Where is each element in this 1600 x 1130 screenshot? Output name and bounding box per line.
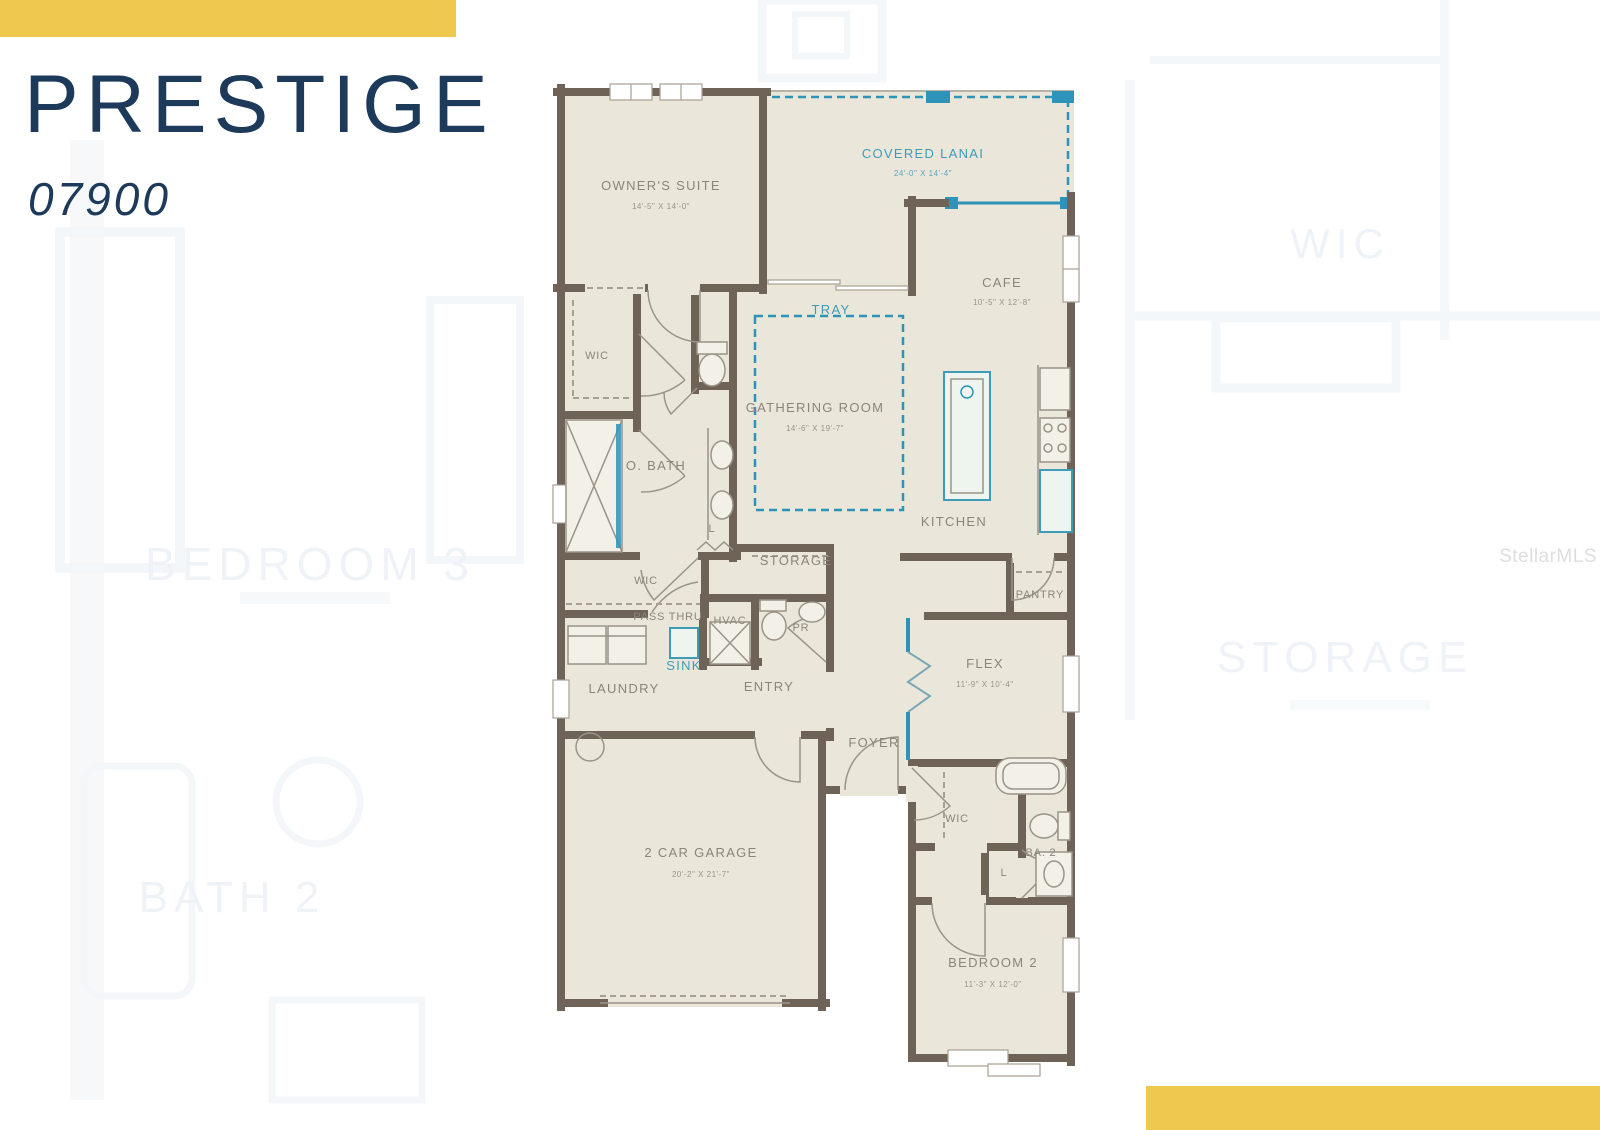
watermark: StellarMLS	[1499, 546, 1597, 568]
room-label-pr: PR	[793, 622, 810, 634]
page: { "header": { "title": "PRESTIGE", "mode…	[0, 0, 1600, 1130]
room-dims-flex: 11'-9" X 10'-4"	[956, 680, 1013, 689]
room-dims-bedroom2: 11'-3" X 12'-0"	[964, 980, 1021, 989]
room-label-entry: ENTRY	[744, 679, 794, 694]
plan-title: PRESTIGE	[24, 60, 495, 150]
room-label-owners-suite: OWNER'S SUITE	[601, 178, 721, 193]
room-dims-gathering-room: 14'-6" X 19'-7"	[786, 424, 844, 433]
label-linen-hall: L	[1001, 867, 1008, 879]
room-dims-covered-lanai: 24'-0" X 14'-4"	[894, 169, 952, 178]
room-label-hvac: HVAC	[714, 615, 747, 627]
room-dims-cafe: 10'-5" X 12'-8"	[973, 298, 1031, 307]
room-label-laundry: LAUNDRY	[589, 681, 660, 696]
room-label-gathering-room: GATHERING ROOM	[746, 400, 885, 415]
label-linen-owners-bath: L	[709, 523, 716, 535]
room-label-foyer: FOYER	[848, 735, 899, 750]
room-label-pantry: PANTRY	[1016, 589, 1064, 601]
room-dims-owners-suite: 14'-5" X 14'-0"	[632, 202, 690, 211]
room-label-covered-lanai: COVERED LANAI	[862, 146, 984, 161]
room-dims-garage: 20'-2" X 21'-7"	[672, 870, 730, 879]
accent-bar-top	[0, 0, 456, 37]
room-label-flex: FLEX	[966, 656, 1004, 671]
room-label-garage: 2 CAR GARAGE	[644, 845, 757, 860]
label-tray: TRAY	[812, 302, 851, 317]
room-label-kitchen: KITCHEN	[921, 514, 987, 529]
accent-bar-bottom	[1146, 1086, 1600, 1130]
room-label-wic-hall: WIC	[634, 575, 658, 587]
room-label-bath2: BA. 2	[1026, 847, 1057, 859]
room-label-bedroom2: BEDROOM 2	[948, 955, 1038, 970]
room-label-wic-bedroom2: WIC	[945, 813, 969, 825]
room-label-wic-owners: WIC	[585, 350, 609, 362]
room-label-cafe: CAFE	[982, 275, 1022, 290]
room-label-storage: STORAGE	[760, 553, 832, 568]
floor-plan: OWNER'S SUITE 14'-5" X 14'-0" COVERED LA…	[0, 0, 1600, 1130]
plan-model-number: 07900	[28, 172, 171, 226]
label-sink: SINK	[666, 658, 702, 673]
label-pass-thru: PASS THRU	[633, 611, 702, 623]
room-label-owners-bath: O. BATH	[626, 458, 686, 473]
